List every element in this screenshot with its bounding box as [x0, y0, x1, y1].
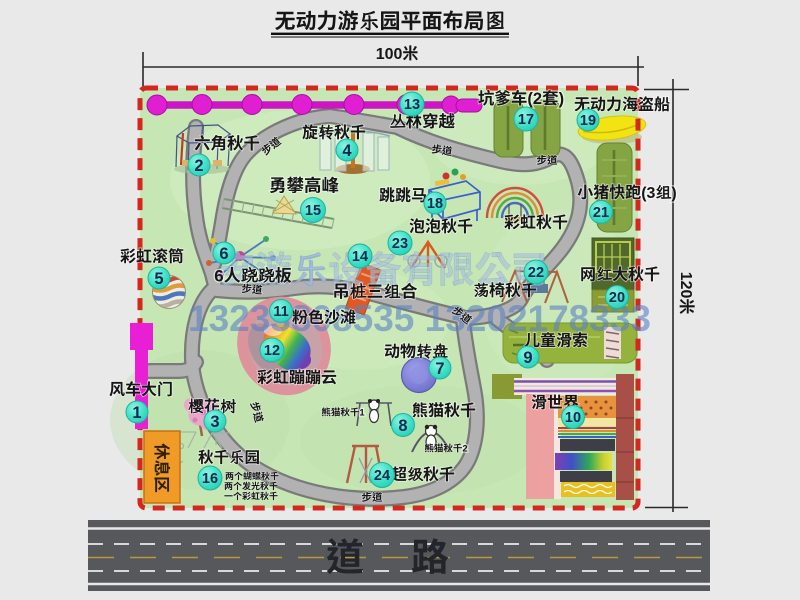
svg-text:5: 5: [154, 270, 163, 288]
svg-text:(2: (2: [527, 90, 542, 108]
svg-text:14: 14: [352, 249, 368, 265]
svg-text:20: 20: [609, 290, 625, 306]
svg-text:11: 11: [273, 304, 288, 320]
svg-text:10: 10: [565, 410, 581, 426]
svg-text:3: 3: [210, 413, 219, 431]
svg-text:(3: (3: [641, 185, 655, 202]
svg-text:): ): [671, 185, 676, 202]
svg-text:6: 6: [214, 266, 223, 285]
svg-text:24: 24: [374, 468, 390, 484]
svg-text:9: 9: [523, 349, 532, 367]
svg-text:100: 100: [376, 46, 403, 63]
svg-text:21: 21: [593, 205, 609, 221]
svg-text:1: 1: [359, 408, 365, 419]
svg-text:15: 15: [305, 203, 321, 219]
svg-text:17: 17: [518, 112, 534, 128]
svg-text:1: 1: [132, 404, 141, 422]
svg-text:22: 22: [528, 265, 544, 281]
svg-text:8: 8: [398, 417, 407, 435]
svg-text:12: 12: [264, 343, 280, 359]
svg-text:18: 18: [427, 196, 443, 212]
svg-text:19: 19: [580, 113, 596, 129]
svg-text:4: 4: [342, 142, 352, 160]
svg-text:6: 6: [219, 245, 228, 263]
svg-text:16: 16: [202, 471, 218, 487]
svg-text:7: 7: [435, 360, 444, 378]
svg-text:13: 13: [404, 97, 420, 113]
svg-text:): ): [559, 90, 565, 108]
svg-text:2: 2: [194, 157, 203, 175]
svg-text:120: 120: [677, 272, 694, 299]
svg-text:23: 23: [392, 236, 408, 252]
svg-text:2: 2: [462, 444, 467, 455]
